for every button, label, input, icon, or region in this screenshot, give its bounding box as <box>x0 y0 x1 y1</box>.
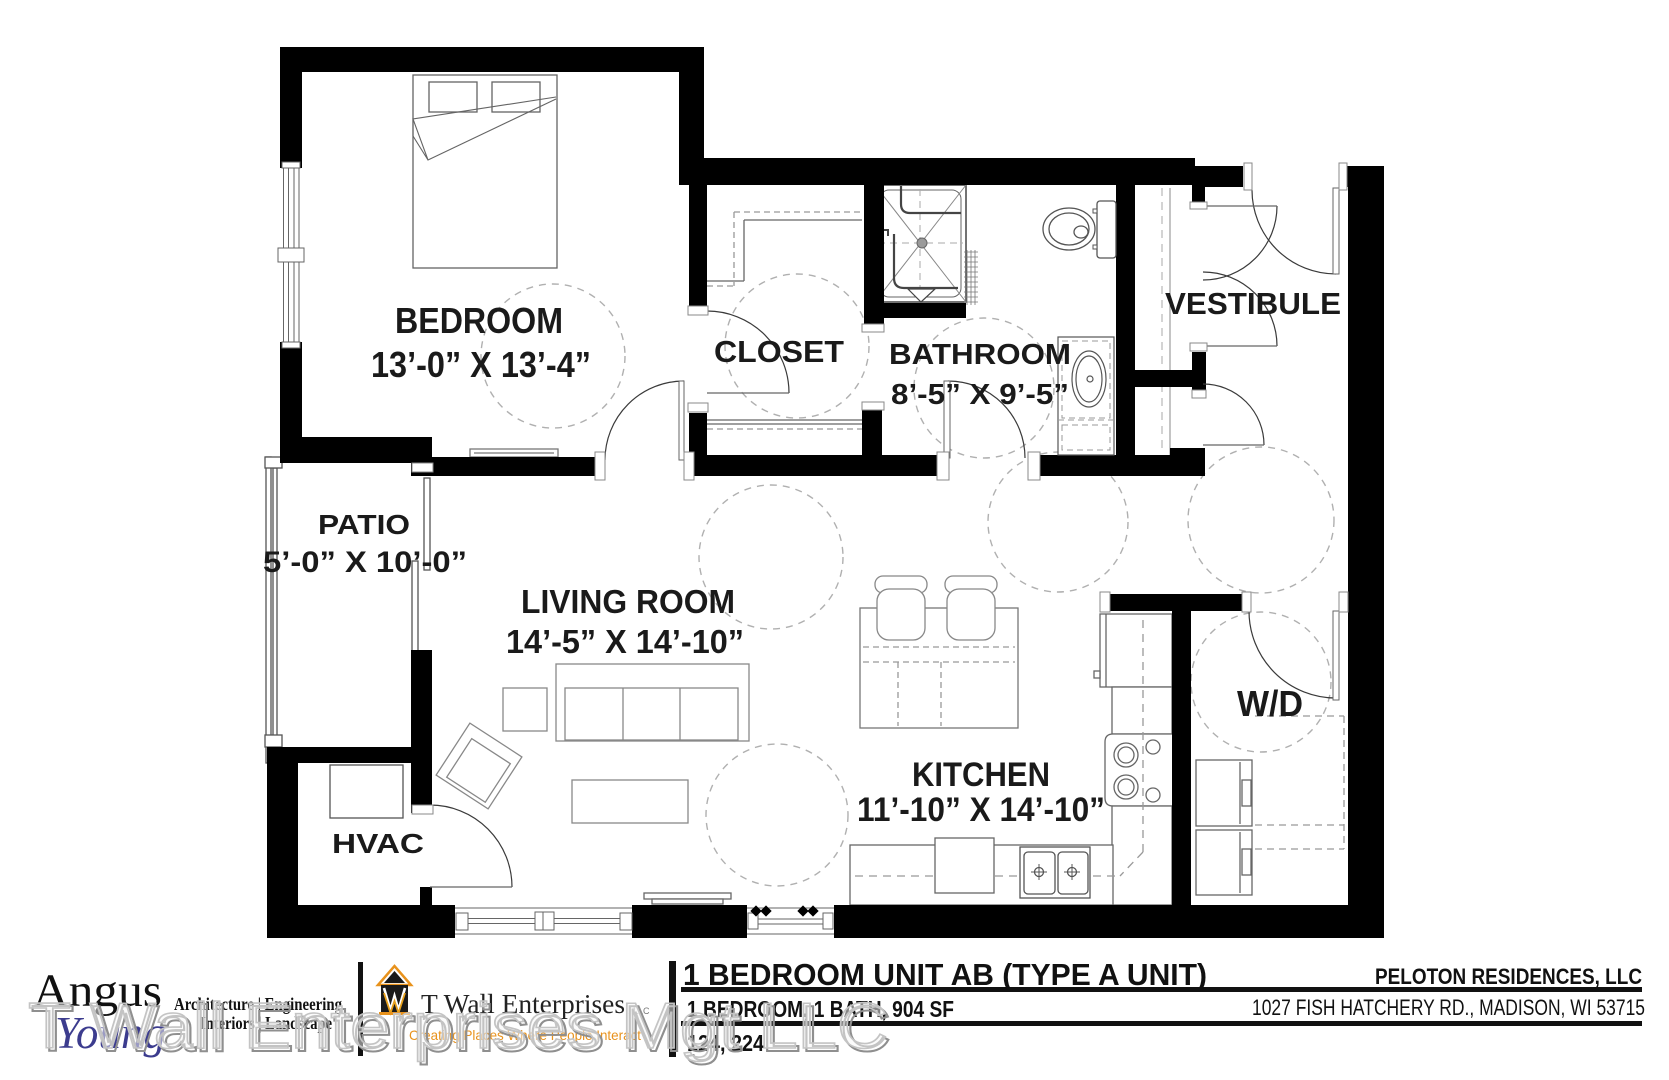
svg-text:KITCHEN: KITCHEN <box>912 756 1050 794</box>
svg-text:CLOSET: CLOSET <box>714 334 844 369</box>
svg-text:PATIO: PATIO <box>318 509 410 540</box>
svg-text:11’-10” X 14’-10”: 11’-10” X 14’-10” <box>857 791 1105 829</box>
svg-text:5’-0” X 10’-0”: 5’-0” X 10’-0” <box>263 546 467 579</box>
svg-text:LIVING ROOM: LIVING ROOM <box>521 583 735 620</box>
svg-text:BEDROOM: BEDROOM <box>395 300 563 341</box>
svg-text:1027 FISH HATCHERY RD., MADISO: 1027 FISH HATCHERY RD., MADISON, WI 5371… <box>1252 995 1645 1020</box>
svg-text:BATHROOM: BATHROOM <box>889 339 1071 371</box>
svg-text:14’-5” X 14’-10”: 14’-5” X 14’-10” <box>506 623 744 660</box>
svg-text:T Wall Enterprises Mgt LLC: T Wall Enterprises Mgt LLC <box>28 989 888 1062</box>
svg-text:HVAC: HVAC <box>332 828 424 859</box>
svg-text:13’-0” X 13’-4”: 13’-0” X 13’-4” <box>371 344 591 385</box>
svg-text:VESTIBULE: VESTIBULE <box>1165 286 1341 321</box>
svg-text:1 BEDROOM UNIT AB (TYPE A UNIT: 1 BEDROOM UNIT AB (TYPE A UNIT) <box>683 957 1207 992</box>
svg-text:W/D: W/D <box>1237 683 1303 724</box>
svg-text:8’-5” X 9’-5”: 8’-5” X 9’-5” <box>891 379 1069 411</box>
svg-text:PELOTON RESIDENCES, LLC: PELOTON RESIDENCES, LLC <box>1375 964 1642 989</box>
